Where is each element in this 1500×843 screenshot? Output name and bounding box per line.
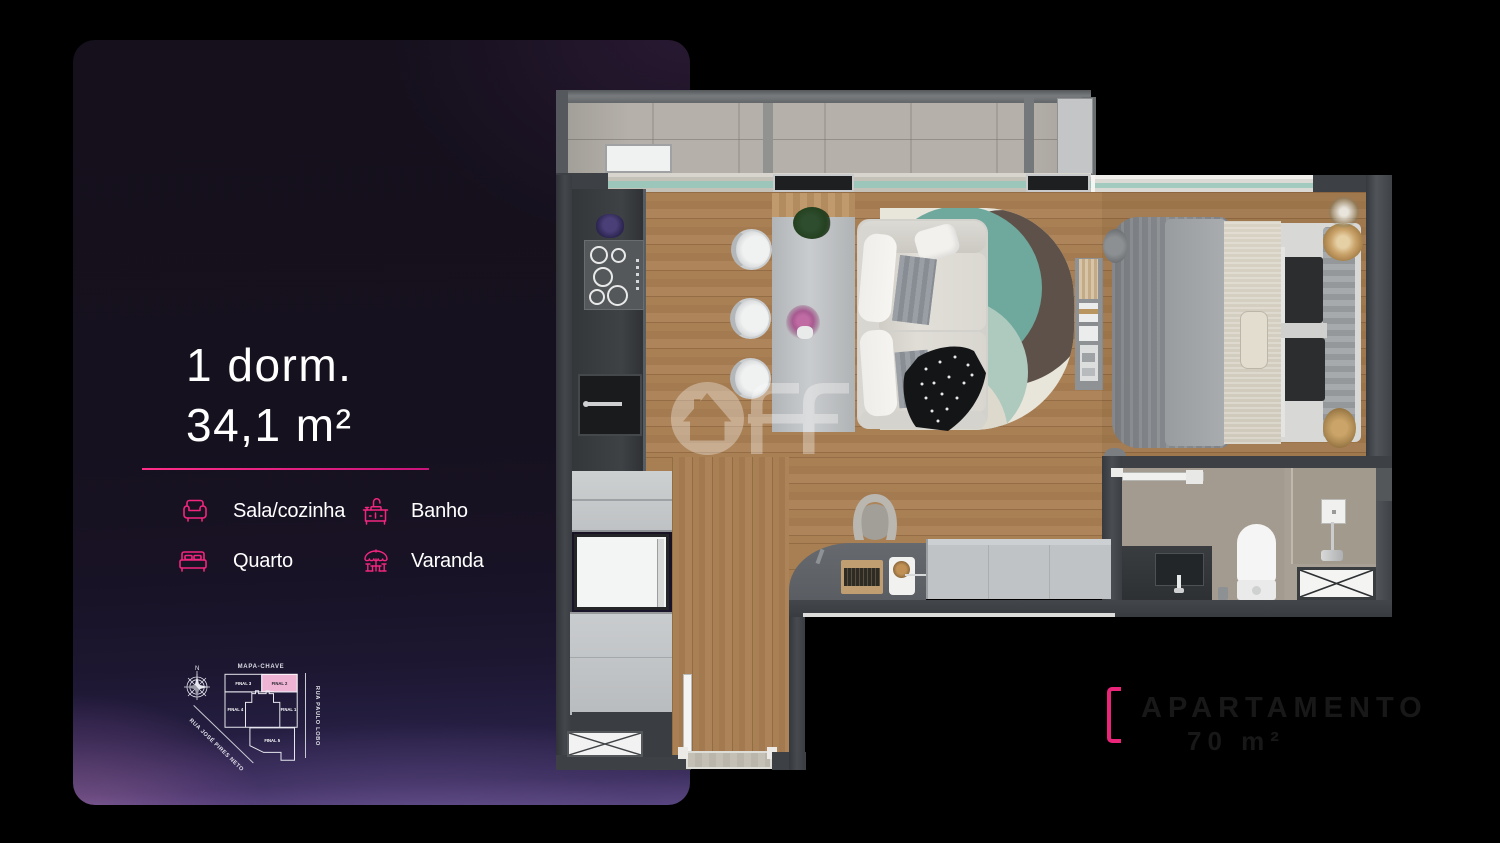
svg-text:FINAL 4: FINAL 4: [228, 707, 244, 712]
svg-text:FINAL 3: FINAL 3: [235, 681, 251, 686]
svg-text:FINAL 1: FINAL 1: [281, 707, 297, 712]
svg-text:FINAL 5: FINAL 5: [264, 738, 280, 743]
svg-text:FINAL 2: FINAL 2: [272, 681, 288, 686]
svg-text:N: N: [195, 666, 199, 672]
